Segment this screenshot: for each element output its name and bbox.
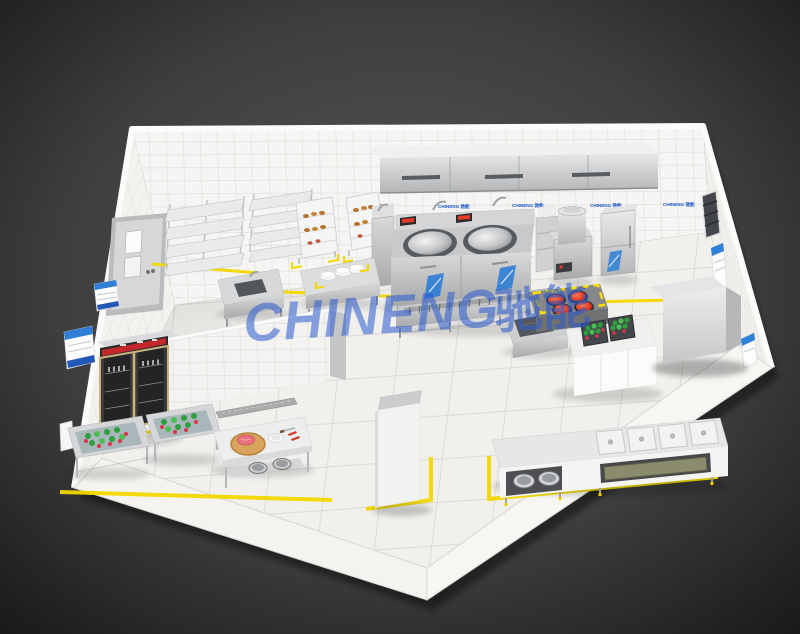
unit-side xyxy=(726,287,741,352)
poster-right-2 xyxy=(741,333,757,368)
kitchen-render-canvas: CHINENG 驰能 CHINENG 驰能 CHINENG 驰能 CHINENG… xyxy=(0,0,800,634)
door-handle xyxy=(146,270,150,274)
wall-label: CHINENG 驰能 xyxy=(438,203,470,210)
poster-left-2 xyxy=(64,326,95,369)
door-window-lower xyxy=(124,256,141,278)
exhaust-hood xyxy=(368,142,658,193)
wall-label: CHINENG 驰能 xyxy=(663,201,695,208)
vegetable-crate-2 xyxy=(608,315,635,341)
cabinet-front xyxy=(378,403,420,507)
poster-left-1 xyxy=(94,280,119,311)
kitchen-3d-render: CHINENG 驰能 CHINENG 驰能 CHINENG 驰能 CHINENG… xyxy=(0,0,800,634)
watermark-chinese: 驰能 xyxy=(493,281,592,340)
unit-front xyxy=(663,287,726,363)
door-window-upper xyxy=(125,230,142,254)
